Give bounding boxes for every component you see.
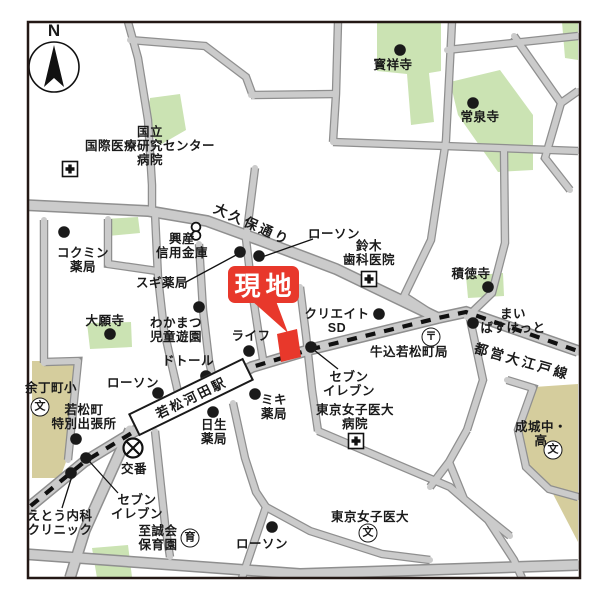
school-symbol-yochomachi: 文 — [31, 398, 50, 417]
label-seven-eleven-west: セブン イレブン — [111, 493, 163, 521]
label-wakamatsucho-branch-office: 若松町 特別出張所 — [51, 403, 116, 431]
poi-dot — [394, 44, 406, 56]
poi-dot — [104, 328, 116, 340]
school-symbol-seijo: 文 — [544, 441, 563, 460]
poi-dot — [80, 452, 92, 464]
compass-north-label: N — [48, 21, 60, 41]
leader-line — [314, 350, 338, 369]
label-kokumin-pharmacy: コクミン 薬局 — [57, 246, 109, 274]
poi-dot — [234, 246, 246, 258]
poi-dot — [266, 521, 278, 533]
poi-dot — [305, 341, 317, 353]
site-parcel — [277, 329, 301, 362]
label-eto-clinic: えとう内科 クリニック — [27, 509, 92, 537]
label-daiganji-temple: 大願寺 — [85, 314, 124, 328]
label-lawson-mid: ローソン — [107, 376, 159, 390]
poi-dot — [58, 226, 70, 238]
label-seijo-jr-sr-high: 成城中・高 — [512, 420, 571, 448]
compass-icon — [29, 42, 79, 92]
poi-dot — [253, 250, 265, 262]
poi-dot — [70, 433, 82, 445]
label-kosan-shinkin-bank: 興産 信用金庫 — [156, 232, 208, 260]
label-twmu-hospital: 東京女子医大 病院 — [316, 403, 394, 431]
label-yochomachi-elementary: 余丁町小 — [25, 381, 77, 395]
hospital-cross-icon — [63, 162, 78, 177]
hospital-cross-icon — [362, 272, 377, 287]
label-nccgm-hospital: 国立 国際医療研究センター 病院 — [85, 125, 215, 167]
poi-dot — [249, 388, 261, 400]
poi-dot — [193, 301, 205, 313]
road-segment — [430, 430, 467, 487]
label-sekitokuji-temple: 積徳寺 — [451, 267, 490, 281]
label-shiseikai-nursery: 至誠会 保育園 — [138, 524, 177, 552]
hospital-cross-icon — [349, 434, 364, 449]
label-miki-pharmacy: ミキ 薬局 — [261, 393, 287, 421]
site-callout: 現地 — [228, 266, 299, 303]
poi-dot — [373, 308, 385, 320]
map-canvas: N 国立 国際医療研究センター 病院 寳祥寺 常泉寺 コクミン 薬局 興産 信用… — [0, 0, 600, 600]
poi-dot — [467, 97, 479, 109]
label-my-basket: まい ばすけっと — [480, 307, 545, 335]
post-office-symbol: 〒 — [422, 328, 441, 347]
road-segment — [251, 94, 335, 95]
label-nissei-pharmacy: 日生 薬局 — [201, 418, 227, 446]
label-lawson-south: ローソン — [236, 537, 288, 551]
label-doutor: ドトール — [162, 354, 214, 368]
poi-dot — [65, 467, 77, 479]
label-suzuki-dental: 鈴木 歯科医院 — [343, 239, 395, 267]
label-koban-police-box: 交番 — [121, 462, 147, 476]
nursery-symbol-shiseikai: 育 — [181, 529, 200, 548]
label-hoshoji-temple: 寳祥寺 — [373, 58, 412, 72]
label-ushigome-post-office: 牛込若松町局 — [370, 345, 448, 359]
label-wakamatsu-childrens-park: わかまつ 児童遊園 — [150, 316, 202, 344]
police-box-icon — [124, 439, 143, 458]
poi-dot — [467, 317, 479, 329]
label-seven-eleven-east: セブン イレブン — [323, 370, 375, 398]
label-josenji-temple: 常泉寺 — [460, 110, 499, 124]
poi-dot — [207, 406, 219, 418]
label-create-sd: クリエイト SD — [304, 307, 369, 335]
park-area — [377, 22, 441, 125]
site-label: 現地 — [234, 266, 296, 303]
school-symbol-twmu: 文 — [359, 524, 378, 543]
label-life-supermarket: ライフ — [231, 329, 270, 343]
label-sugi-pharmacy: スギ薬局 — [136, 276, 188, 290]
label-twmu: 東京女子医大 — [331, 510, 409, 524]
poi-dot — [243, 345, 255, 357]
poi-dot — [482, 281, 494, 293]
